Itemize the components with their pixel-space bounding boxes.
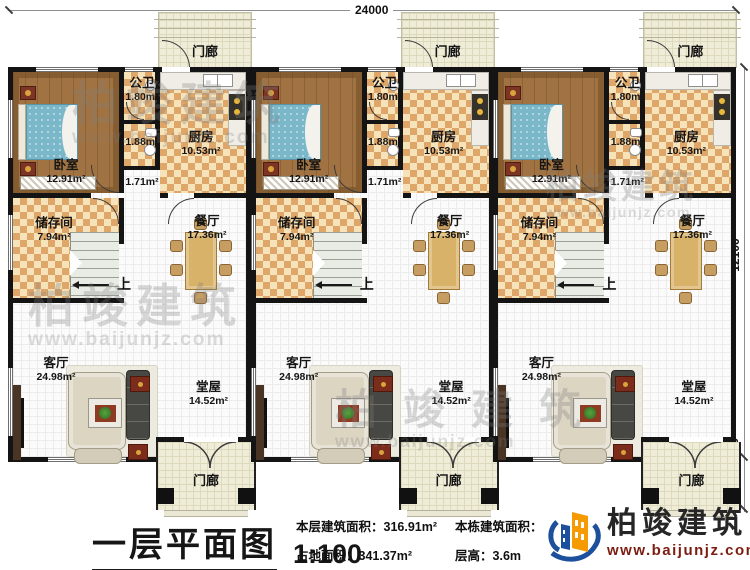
side-table <box>373 376 393 392</box>
dining-label: 餐厅 17.36m² <box>411 214 489 242</box>
porch-post <box>641 488 659 504</box>
nightstand <box>20 86 36 100</box>
sofa-small <box>74 448 122 464</box>
wall <box>362 198 367 244</box>
unit-2: 门廊 <box>251 0 495 520</box>
hall-label: 堂屋 14.52m² <box>171 380 246 408</box>
porch-bottom-label: 门廊 <box>158 470 254 489</box>
bed-headboard <box>261 104 269 160</box>
stove-icon <box>472 94 488 120</box>
wall <box>645 193 653 198</box>
coffee-table <box>331 398 365 428</box>
wall <box>160 193 168 198</box>
corridor-area-label: 1.71m² <box>122 176 162 189</box>
tv-cabinet <box>498 385 506 460</box>
window <box>125 67 153 72</box>
coffee-table <box>88 398 122 428</box>
bathroom2-area-label: 1.88m² <box>367 136 403 149</box>
stairs-direction-arrow <box>79 284 109 286</box>
kitchen-label: 厨房 10.53m² <box>160 130 242 158</box>
bed-sheet <box>62 105 77 159</box>
chair <box>194 292 207 304</box>
chair <box>462 264 475 276</box>
plant-icon <box>342 407 354 419</box>
double-door-arc <box>667 442 723 469</box>
bathroom-label: 公卫 1.80m² <box>609 76 645 104</box>
dimension-line-right <box>744 68 745 512</box>
hall-label: 堂屋 14.52m² <box>656 380 731 408</box>
window <box>368 67 396 72</box>
wall <box>604 198 609 244</box>
wall <box>403 193 411 198</box>
bed-sheet <box>547 105 562 159</box>
tv-icon <box>21 398 24 448</box>
storage-label: 储存间 7.94m² <box>18 216 90 244</box>
chair <box>219 264 232 276</box>
bedroom-label: 卧室 12.91m² <box>261 158 357 186</box>
side-table <box>613 444 633 460</box>
bathroom-label: 公卫 1.80m² <box>124 76 160 104</box>
stove-icon <box>229 94 245 120</box>
living-label: 客厅 24.98m² <box>261 356 337 384</box>
bedroom-label: 卧室 12.91m² <box>503 158 599 186</box>
kitchen-sink-icon <box>203 74 233 87</box>
double-door-arc <box>182 442 238 469</box>
chair <box>170 264 183 276</box>
title-block: 一层平面图 1:100 本层建筑面积：316.91m² 本栋建筑面积： 占地面积… <box>0 505 750 570</box>
wall <box>498 193 576 198</box>
window <box>8 100 13 158</box>
wall <box>119 198 124 244</box>
window <box>493 215 498 270</box>
window <box>521 67 583 72</box>
kitchen-sink-icon <box>688 74 718 87</box>
bed <box>511 104 563 160</box>
unit-3: 门廊 <box>493 0 737 520</box>
stove-icon <box>714 94 730 120</box>
stat-building-area: 本栋建筑面积： <box>455 516 543 535</box>
kitchen-label: 厨房 10.53m² <box>645 130 727 158</box>
brand-website: www.baijunjz.com <box>607 542 750 559</box>
wall <box>256 193 334 198</box>
window <box>8 215 13 270</box>
stairs-direction-arrow <box>322 284 352 286</box>
brand-name: 柏竣建筑 <box>607 509 750 539</box>
wall <box>498 298 609 303</box>
corridor-area-label: 1.71m² <box>365 176 405 189</box>
stairs-up-label: 上 <box>602 274 616 294</box>
stat-floor-height: 层高：3.6m <box>455 545 543 564</box>
window <box>279 67 341 72</box>
stairs-up-label: 上 <box>360 274 374 294</box>
chair <box>462 240 475 252</box>
tv-icon <box>506 398 509 448</box>
side-table <box>615 376 635 392</box>
side-table <box>371 444 391 460</box>
porch-bottom-label: 门廊 <box>643 470 739 489</box>
bathroom2-area-label: 1.88m² <box>609 136 645 149</box>
window <box>251 215 256 270</box>
brand-logo: 柏竣建筑 www.baijunjz.com <box>545 506 750 562</box>
chair <box>413 264 426 276</box>
unit-main-body: 上 卧室 12.91m² 公卫 1.80m² 1.88m² 1.71m² 厨房 <box>8 67 251 462</box>
brand-logo-icon <box>545 506 601 562</box>
unit-main-body: 上 卧室 12.91m² 公卫 1.80m² 1.88m² 1.71m² 厨房 <box>493 67 736 462</box>
stairs-up-label: 上 <box>117 274 131 294</box>
bathroom-label: 公卫 1.80m² <box>367 76 403 104</box>
chair <box>655 264 668 276</box>
window <box>251 100 256 158</box>
wall <box>256 298 367 303</box>
porch-post <box>723 488 741 504</box>
kitchen-sink-icon <box>446 74 476 87</box>
bed <box>26 104 78 160</box>
window <box>36 67 98 72</box>
plant-icon <box>99 407 111 419</box>
dining-label: 餐厅 17.36m² <box>653 214 731 242</box>
porch-bottom-label: 门廊 <box>401 470 497 489</box>
porch-post <box>399 488 417 504</box>
unit-1: 门廊 <box>8 0 252 520</box>
bed-headboard <box>503 104 511 160</box>
living-label: 客厅 24.98m² <box>18 356 94 384</box>
nightstand <box>505 86 521 100</box>
wall <box>13 298 124 303</box>
chair <box>704 264 717 276</box>
chair <box>655 240 668 252</box>
window <box>610 67 638 72</box>
bed-headboard <box>18 104 26 160</box>
corridor-area-label: 1.71m² <box>607 176 647 189</box>
unit-main-body: 上 卧室 12.91m² 公卫 1.80m² 1.88m² 1.71m² 厨房 <box>251 67 494 462</box>
chair <box>704 240 717 252</box>
chair <box>679 292 692 304</box>
stat-floor-area: 本层建筑面积：316.91m² <box>296 516 437 535</box>
chair <box>170 240 183 252</box>
side-table <box>128 444 148 460</box>
chair <box>437 292 450 304</box>
brand-text: 柏竣建筑 www.baijunjz.com <box>607 509 750 559</box>
area-stats: 本层建筑面积：316.91m² 本栋建筑面积： 占地面积：341.37m² 层高… <box>296 516 543 564</box>
storage-label: 储存间 7.94m² <box>261 216 333 244</box>
wall <box>194 193 246 198</box>
floor-plan-canvas: 24000 12100 1000, 1200 门廊 <box>0 0 750 570</box>
side-table <box>130 376 150 392</box>
nightstand <box>263 86 279 100</box>
sofa-small <box>317 448 365 464</box>
plan-title: 一层平面图 <box>92 517 277 570</box>
tv-cabinet <box>256 385 264 460</box>
chair <box>219 240 232 252</box>
tv-icon <box>264 398 267 448</box>
kitchen-label: 厨房 10.53m² <box>403 130 485 158</box>
tv-cabinet <box>13 385 21 460</box>
stat-land-area: 占地面积：341.37m² <box>296 545 437 564</box>
stairs-direction-arrow <box>564 284 594 286</box>
bed-sheet <box>305 105 320 159</box>
bedroom-label: 卧室 12.91m² <box>18 158 114 186</box>
coffee-table <box>573 398 607 428</box>
bathroom2-area-label: 1.88m² <box>124 136 160 149</box>
window <box>493 100 498 158</box>
double-door-arc <box>425 442 481 469</box>
wall <box>13 193 91 198</box>
hall-label: 堂屋 14.52m² <box>414 380 489 408</box>
porch-post <box>156 488 174 504</box>
wall <box>679 193 731 198</box>
sofa-small <box>559 448 607 464</box>
dining-label: 餐厅 17.36m² <box>168 214 246 242</box>
living-label: 客厅 24.98m² <box>503 356 579 384</box>
chair <box>413 240 426 252</box>
storage-label: 储存间 7.94m² <box>503 216 575 244</box>
wall <box>437 193 489 198</box>
bed <box>269 104 321 160</box>
